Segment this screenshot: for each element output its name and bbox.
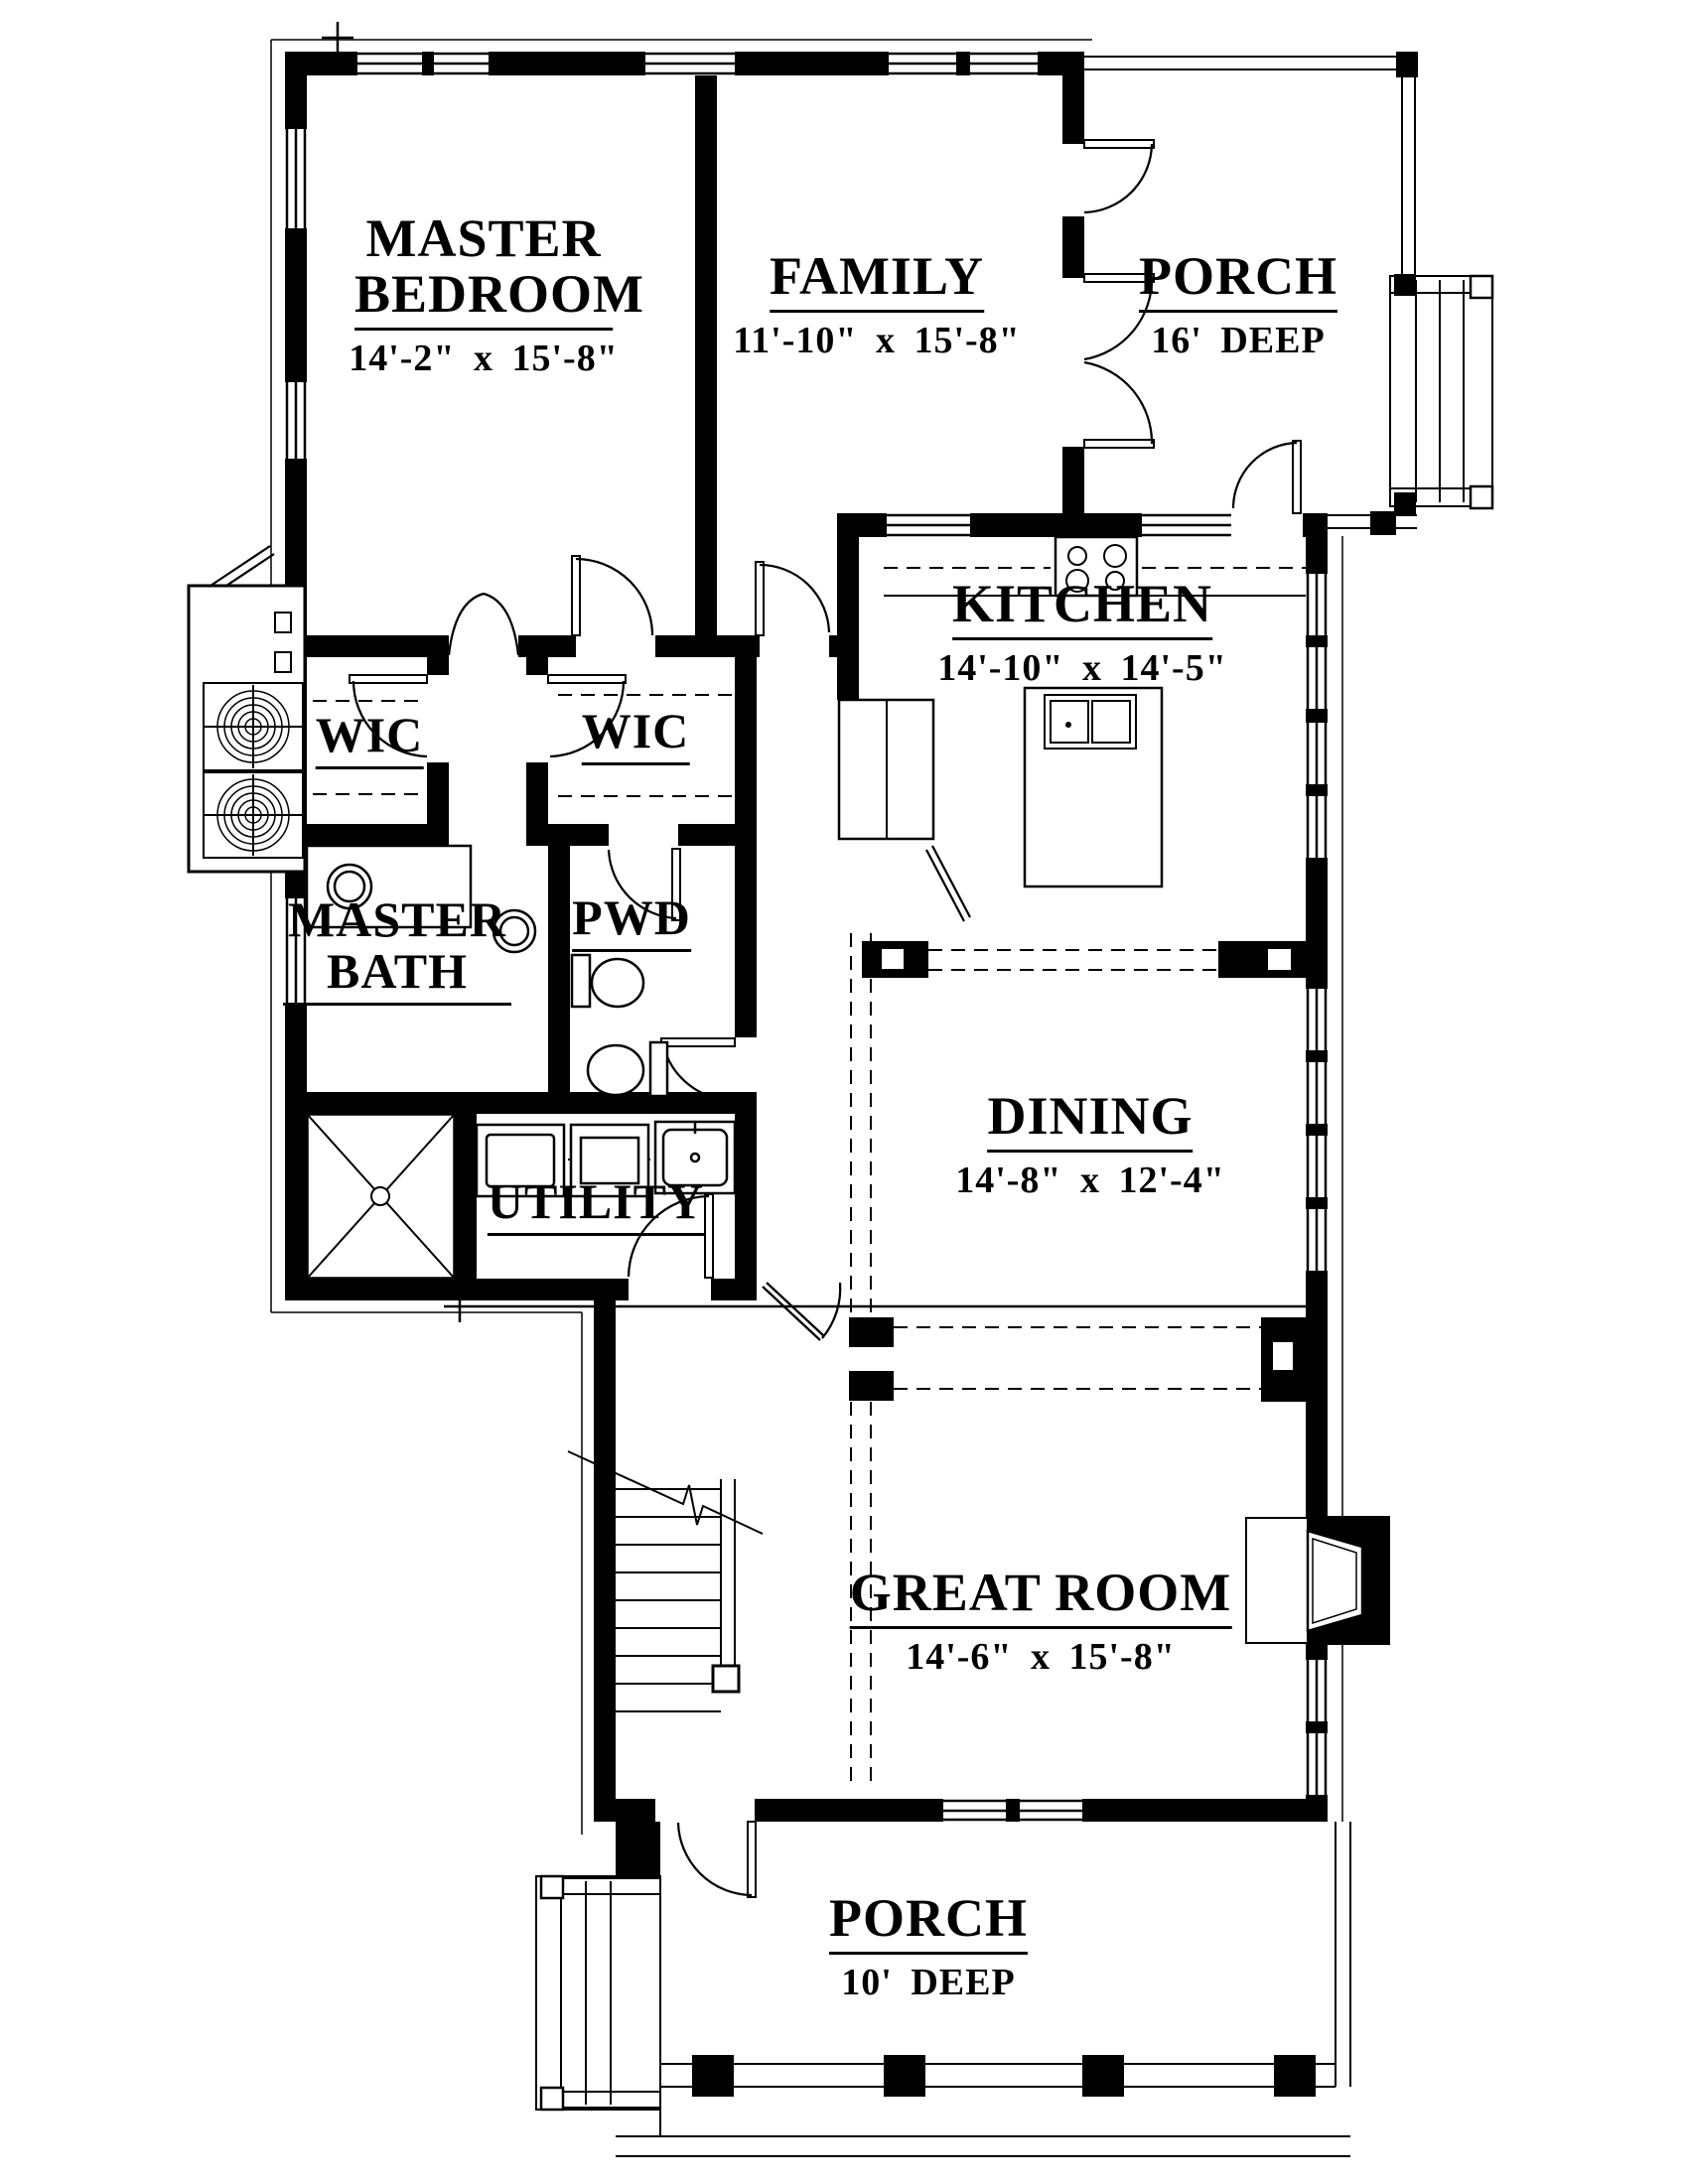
room-dims: 16' DEEP	[1139, 319, 1337, 362]
meter-box	[275, 652, 291, 672]
window	[1020, 1801, 1082, 1820]
header-kitchen-dining	[928, 950, 1218, 970]
window	[970, 54, 1038, 73]
window	[1308, 574, 1326, 635]
lower-steps	[536, 1876, 660, 2110]
window	[287, 129, 305, 228]
room-name: MASTER BATH	[283, 893, 511, 1006]
room-label-master-bath: MASTER BATH	[283, 893, 511, 1006]
room-name: WIC	[316, 709, 424, 769]
toilet-icon	[572, 955, 643, 1007]
window	[887, 515, 970, 535]
room-name: UTILITY	[488, 1175, 704, 1236]
window	[1308, 1136, 1326, 1197]
shower-icon	[307, 1114, 455, 1279]
door-family-porch	[1084, 144, 1152, 212]
room-label-wic-right: WIC	[582, 705, 690, 765]
door-wc	[663, 1044, 733, 1100]
room-label-master-bedroom: MASTER BEDROOM 14'-2" x 15'-8"	[349, 210, 619, 380]
window	[1142, 515, 1231, 535]
window	[943, 1801, 1006, 1820]
room-name: DINING	[987, 1088, 1193, 1153]
meter-box	[275, 613, 291, 632]
room-dims: 14'-10" x 14'-5"	[937, 646, 1227, 690]
room-name: MASTER BEDROOM	[354, 210, 613, 331]
double-door-master	[449, 594, 518, 655]
lower-porch-slab	[616, 2110, 1350, 2156]
room-name: WIC	[582, 705, 690, 765]
upper-steps	[1390, 276, 1492, 506]
room-label-kitchen: KITCHEN 14'-10" x 14'-5"	[937, 576, 1227, 690]
window	[287, 382, 305, 459]
window	[434, 54, 489, 73]
door-stair	[763, 1283, 840, 1340]
door-pantry	[926, 846, 970, 921]
room-label-porch-upper: PORCH 16' DEEP	[1139, 248, 1337, 362]
door-family-hall	[760, 565, 829, 632]
window	[1308, 1733, 1326, 1795]
room-label-porch-lower: PORCH 10' DEEP	[829, 1890, 1028, 2004]
room-label-family: FAMILY 11'-10" x 15'-8"	[733, 248, 1021, 362]
stair-treads	[616, 1489, 721, 1711]
window	[357, 54, 422, 73]
door-kitchen-porch	[1233, 443, 1297, 508]
room-label-dining: DINING 14'-8" x 12'-4"	[955, 1088, 1225, 1202]
room-label-utility: UTILITY	[488, 1175, 704, 1236]
room-name: PWD	[572, 891, 691, 952]
room-label-wic-left: WIC	[316, 709, 424, 769]
step-post	[1471, 486, 1492, 508]
room-label-pwd: PWD	[572, 891, 691, 952]
window	[1308, 796, 1326, 858]
room-dims: 14'-8" x 12'-4"	[955, 1159, 1225, 1202]
newel-post	[713, 1666, 739, 1692]
window	[1308, 723, 1326, 784]
room-dims: 11'-10" x 15'-8"	[733, 319, 1021, 362]
room-dims: 14'-6" x 15'-8"	[850, 1635, 1232, 1679]
door-bedroom	[576, 559, 652, 635]
room-dims: 14'-2" x 15'-8"	[349, 337, 619, 380]
stair-rail	[721, 1479, 735, 1688]
window	[1308, 1062, 1326, 1124]
room-dims: 10' DEEP	[829, 1961, 1028, 2004]
window	[1308, 647, 1326, 709]
window	[1308, 1209, 1326, 1271]
step-post	[1471, 276, 1492, 298]
room-name: FAMILY	[770, 248, 984, 313]
toilet-icon	[588, 1042, 667, 1096]
step-post	[541, 1876, 563, 1898]
header-dining-great	[894, 1327, 1261, 1389]
room-name: GREAT ROOM	[850, 1565, 1232, 1629]
door-front	[678, 1823, 752, 1895]
room-name: PORCH	[829, 1890, 1028, 1955]
window	[645, 54, 735, 73]
floor-plan: MASTER BEDROOM 14'-2" x 15'-8" FAMILY 11…	[0, 0, 1688, 2184]
window	[1308, 1660, 1326, 1721]
step-post	[541, 2088, 563, 2110]
hearth	[1246, 1518, 1308, 1643]
window	[1308, 989, 1326, 1050]
room-name: PORCH	[1139, 248, 1337, 313]
room-name: KITCHEN	[952, 576, 1212, 640]
room-label-great-room: GREAT ROOM 14'-6" x 15'-8"	[850, 1565, 1232, 1679]
window	[889, 54, 956, 73]
